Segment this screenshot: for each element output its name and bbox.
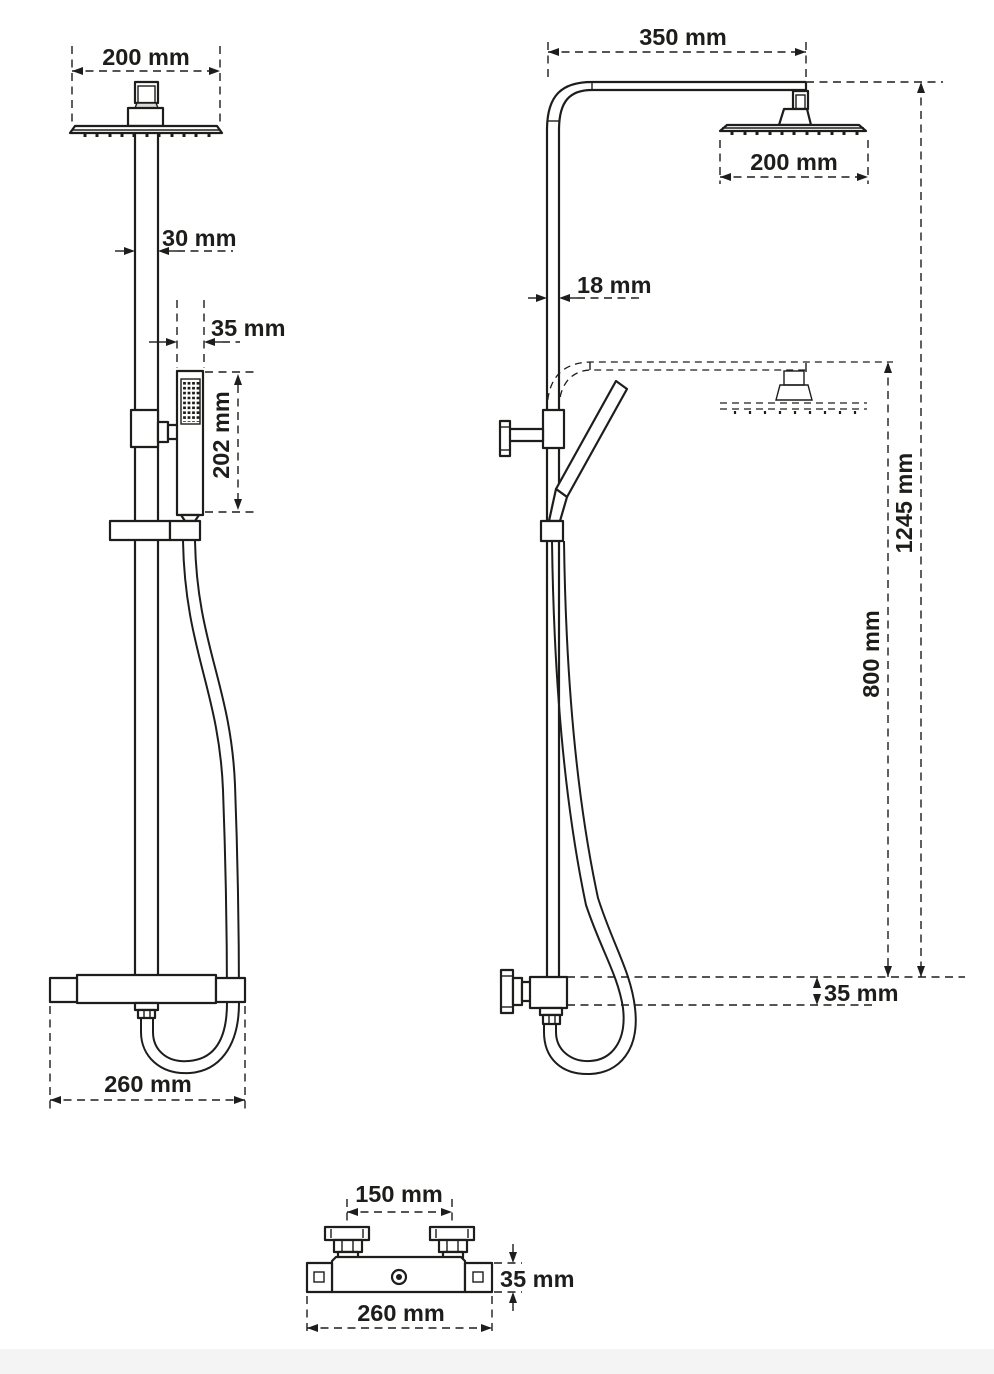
side-lower-block [541,521,563,541]
arrow [917,82,925,93]
front-hose [195,541,239,1003]
arrow [813,994,821,1005]
side-valve-stem [513,978,522,1005]
dim-label: 1245 mm [891,453,917,554]
arrow [917,966,925,977]
page-bottom-edge [0,1349,994,1374]
arrow [559,294,570,302]
dim-label: 260 mm [104,1071,192,1097]
side-riser-and-arm [559,90,806,977]
phantom-head-nozzles [735,411,855,414]
arrow [50,1096,61,1104]
bottom-handle-right [430,1227,474,1258]
side-head-base [779,109,811,125]
dim-front-handset-width: 35 mm [149,300,285,368]
dim-front-pole-width: 30 mm [115,225,236,255]
arrow [234,1096,245,1104]
arrow [884,966,892,977]
front-bracket [170,521,200,540]
arrow [536,294,547,302]
dim-bottom-mixer-width: 260 mm [307,1296,492,1336]
arrow [166,338,177,346]
arrow [509,1292,517,1303]
dim-label: 30 mm [162,225,236,251]
front-holder-arm [158,422,168,442]
technical-drawing-page: 200 mm 30 mm 35 mm [0,0,994,1374]
dim-label: 200 mm [102,44,190,70]
dim-bottom-handle-spacing: 150 mm [347,1181,452,1225]
side-hose-nut-hex [543,1015,560,1024]
bottom-view: 150 mm 35 mm 260 mm [307,1181,574,1336]
side-valve-body [530,977,567,1008]
dim-label: 202 mm [208,391,234,479]
side-wall-bracket-arm [509,429,543,441]
bottom-handle-left [325,1227,369,1258]
side-riser-and-arm [547,82,806,977]
front-hose [183,541,227,1003]
shower-dimension-diagram: 200 mm 30 mm 35 mm [0,0,994,1374]
arrow [347,1208,358,1216]
dim-front-mixer-width: 260 mm [50,1006,245,1110]
front-hose-loop [153,1003,227,1061]
bottom-valve-cap-right [465,1263,492,1292]
front-hose-nut-hex [138,1010,155,1018]
front-valve-cap-right [216,978,245,1002]
side-head-connector [793,91,808,109]
arrow [234,499,242,510]
arrow [813,977,821,988]
front-mixer-valve [50,975,245,1018]
dim-side-height-max: 1245 mm [806,82,943,977]
dim-label: 350 mm [639,24,727,50]
side-slider-block [543,410,564,448]
front-slider-block [131,410,158,447]
arrow [857,173,868,181]
arrow [209,67,220,75]
dim-side-mixer-height: 35 mm [567,977,965,1006]
arrow [481,1324,492,1332]
side-view: 350 mm 200 mm 18 mm 1245 mm [500,24,965,1074]
dim-label: 260 mm [357,1300,445,1326]
dim-label: 18 mm [577,272,651,298]
front-valve-cap-left [50,978,77,1002]
dim-bottom-body-height: 35 mm [494,1244,574,1311]
side-wall-bracket-flange [500,421,510,456]
handle-stem [439,1240,467,1252]
front-handset [177,371,203,521]
dim-label: 35 mm [211,315,285,341]
arrow [441,1208,452,1216]
side-handset-taper [549,489,567,521]
arrow [72,67,83,75]
arrow [509,1252,517,1263]
arrow [307,1324,318,1332]
front-view: 200 mm 30 mm 35 mm [50,44,285,1110]
arrow [234,374,242,385]
dim-side-head-depth: 200 mm [720,140,868,184]
side-shower-head [720,91,866,135]
dim-label: 35 mm [500,1266,574,1292]
dim-label: 35 mm [824,980,898,1006]
front-bracket [110,521,170,540]
arrow [548,48,559,56]
side-mixer-valve [501,970,567,1024]
arrow [124,247,135,255]
arrow [795,48,806,56]
dim-label: 200 mm [750,149,838,175]
dim-side-height-min: 800 mm [858,362,892,977]
side-handset [556,381,627,497]
handle-stem [334,1240,362,1252]
phantom-head-connector [784,371,804,385]
phantom-head-base [776,385,812,400]
dim-label: 150 mm [355,1181,443,1207]
bottom-outlet-dot [396,1274,402,1280]
front-valve-body [77,975,216,1003]
dim-front-handset-length: 202 mm [205,372,257,512]
arrow [720,173,731,181]
phantom-lowered-position [547,362,893,414]
arrow [884,362,892,373]
front-shower-head [70,82,222,137]
dim-side-arm-projection: 350 mm [548,24,806,78]
front-head-base [128,108,163,126]
dim-label: 800 mm [858,610,884,698]
bottom-valve-cap-left [307,1263,332,1292]
